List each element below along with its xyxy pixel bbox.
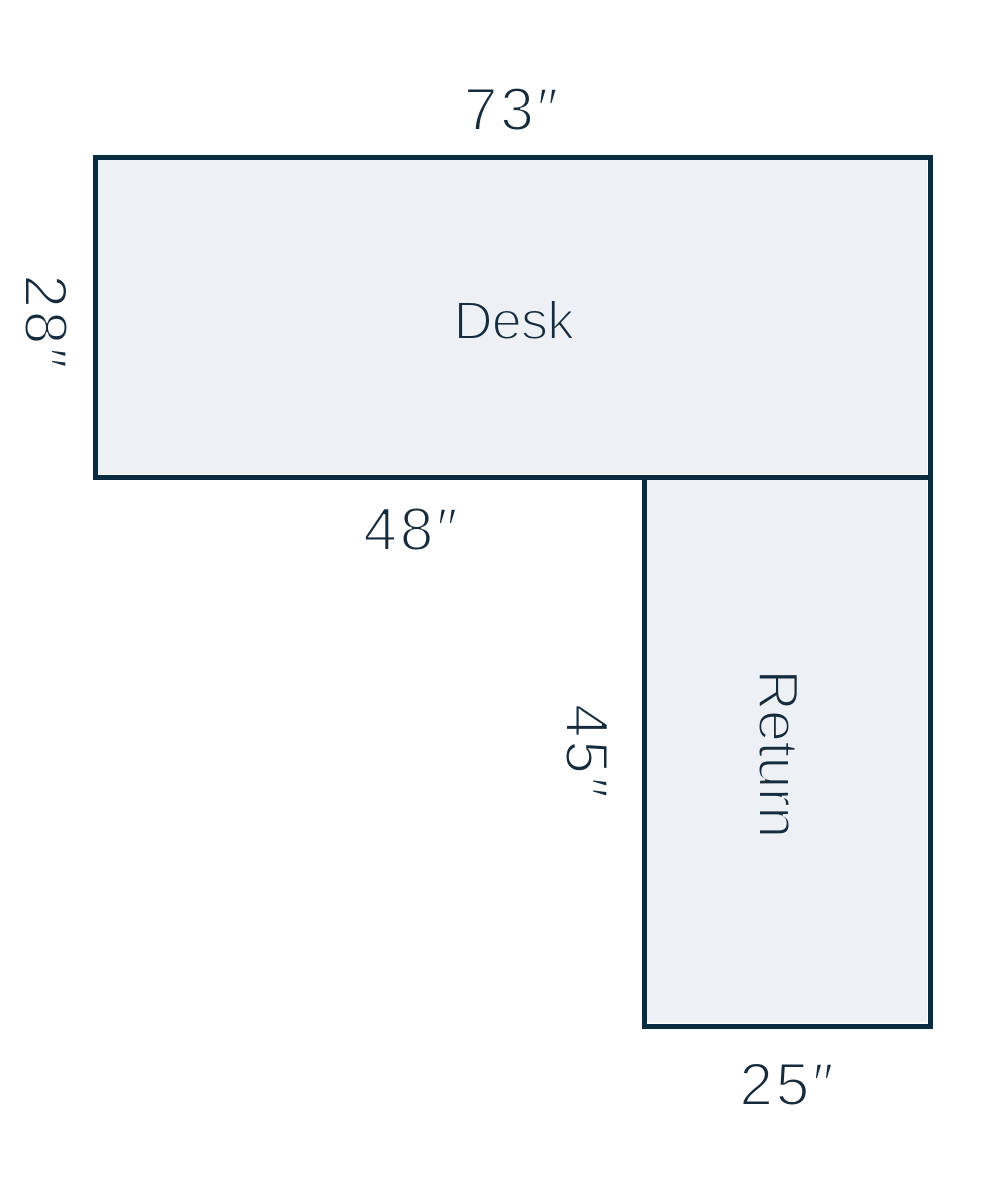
- svg-text:28″: 28″: [12, 275, 79, 372]
- svg-text:73″: 73″: [464, 76, 561, 143]
- svg-text:Desk: Desk: [454, 291, 576, 351]
- svg-text:25″: 25″: [740, 1051, 837, 1118]
- svg-text:45″: 45″: [553, 704, 620, 801]
- svg-text:Return: Return: [746, 669, 810, 837]
- svg-text:48″: 48″: [364, 496, 461, 563]
